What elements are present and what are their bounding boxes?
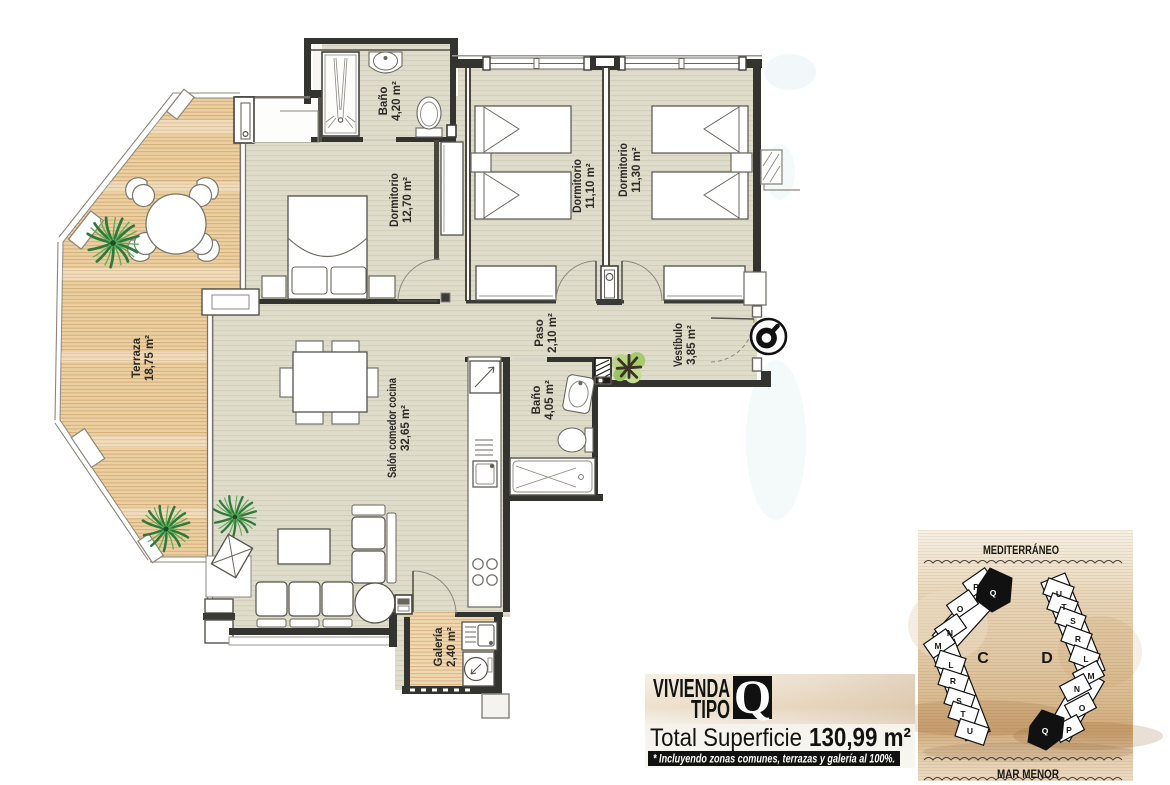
svg-text:Galería: Galería [433,627,445,667]
svg-text:Dormitorio: Dormitorio [389,173,401,227]
svg-text:Dormitorio: Dormitorio [572,159,584,213]
svg-text:L: L [948,660,953,670]
svg-text:Baño: Baño [378,87,390,116]
svg-text:C: C [977,650,989,667]
svg-text:4,05 m²: 4,05 m² [544,380,556,420]
svg-text:Dormitorio: Dormitorio [618,143,630,197]
svg-text:TIPO: TIPO [691,694,730,724]
svg-text:U: U [967,726,973,736]
svg-text:P: P [1066,725,1072,735]
svg-text:L: L [1083,654,1088,664]
svg-text:T: T [960,709,966,719]
svg-text:U: U [1056,589,1062,599]
svg-text:R: R [950,676,956,686]
svg-text:11,10 m²: 11,10 m² [585,163,597,209]
svg-text:4,20 m²: 4,20 m² [391,81,403,121]
svg-text:32,65 m²: 32,65 m² [400,405,412,451]
svg-text:R: R [1075,634,1081,644]
svg-text:Vestíbulo: Vestíbulo [673,323,685,367]
svg-text:Baño: Baño [531,386,543,415]
svg-text:2,10 m²: 2,10 m² [547,313,559,353]
svg-text:S: S [956,696,962,706]
svg-text:T: T [1061,602,1067,612]
svg-text:2,40 m²: 2,40 m² [446,627,458,667]
svg-text:12,70 m²: 12,70 m² [402,177,414,223]
svg-text:* Incluyendo zonas comunes, te: * Incluyendo zonas comunes, terrazas y g… [653,754,895,766]
svg-text:MEDITERRÁNEO: MEDITERRÁNEO [983,542,1059,557]
svg-text:M: M [1087,671,1094,681]
svg-text:Total Superficie: Total Superficie [650,724,802,752]
svg-text:130,99 m²: 130,99 m² [809,722,911,752]
svg-text:D: D [1041,650,1053,667]
svg-text:Paso: Paso [534,319,546,347]
svg-text:P: P [973,582,979,592]
svg-text:Terraza: Terraza [131,337,143,378]
svg-text:Salón comedor cocina: Salón comedor cocina [387,378,399,478]
svg-text:O: O [957,604,964,614]
svg-text:18,75 m²: 18,75 m² [144,335,156,381]
svg-text:11,30 m²: 11,30 m² [631,147,643,193]
svg-text:Q: Q [990,588,997,598]
svg-text:N: N [947,628,953,638]
svg-text:O: O [1079,703,1086,713]
svg-text:S: S [1070,616,1076,626]
svg-text:3,85 m²: 3,85 m² [686,325,698,365]
svg-text:Q: Q [1042,726,1049,736]
svg-text:Q: Q [734,671,771,724]
svg-text:MAR MENOR: MAR MENOR [997,767,1059,781]
svg-text:N: N [1074,684,1080,694]
svg-text:M: M [934,641,941,651]
